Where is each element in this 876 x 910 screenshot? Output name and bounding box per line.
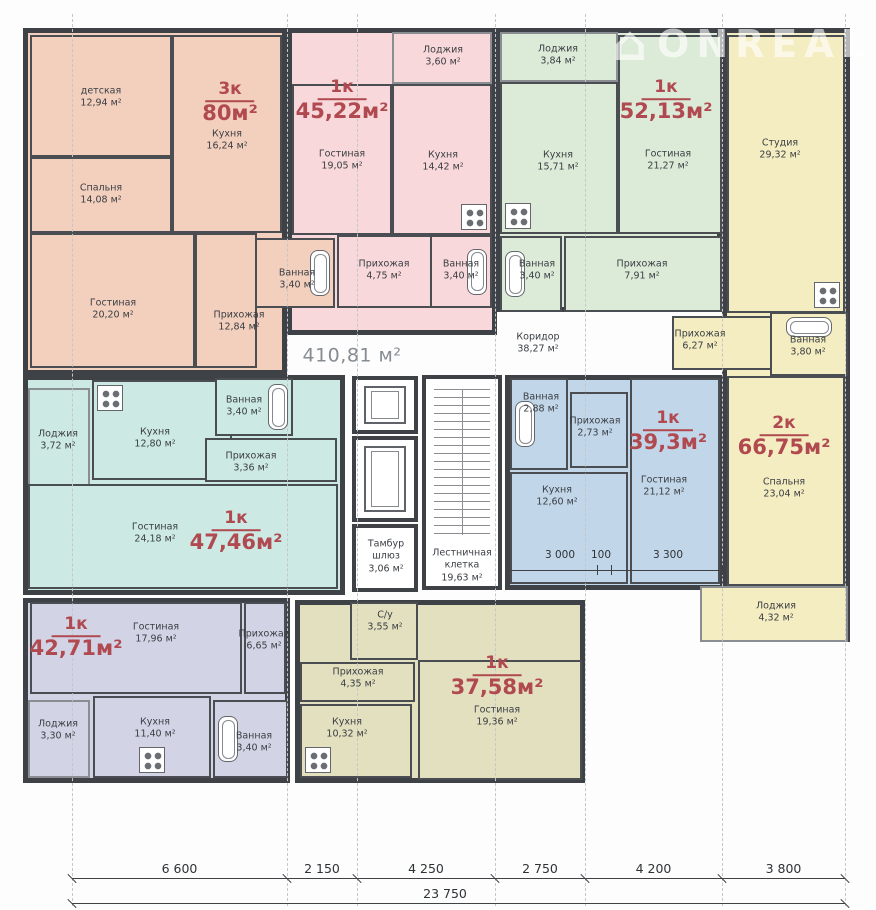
apartment-type: 1к	[472, 654, 521, 676]
room-label: Ванная3,80 м²	[790, 335, 826, 360]
room-name: Прихожая	[359, 259, 410, 271]
room-label: Кухня11,40 м²	[134, 717, 175, 742]
segment-dimension-label: 6 600	[162, 861, 198, 876]
room-area: 3,72 м²	[38, 441, 78, 453]
room-name: Прихожая	[675, 329, 726, 341]
room-label: Ванная3,40 м²	[226, 395, 262, 420]
room-label: Кухня14,42 м²	[422, 150, 463, 175]
room-label: Кухня15,71 м²	[537, 150, 578, 175]
room-label: Лоджия3,72 м²	[38, 429, 78, 454]
apartment-area: 39,3м²	[629, 431, 707, 455]
segment-dimension-label: 2 750	[522, 861, 558, 876]
room-name: Студия	[759, 138, 800, 150]
room-name: Кухня	[326, 717, 367, 729]
room-name: Прихожая	[617, 259, 668, 271]
floorplan: 410,81 м²Коридор38,27 м²Тамбур шлюз3,06 …	[0, 0, 876, 910]
room-name: Кухня	[537, 150, 578, 162]
room-name: детская	[80, 86, 121, 98]
apartment-area: 80м²	[202, 102, 258, 126]
room-name: Гостиная	[132, 522, 178, 534]
inner-dimension-label: 100	[591, 549, 611, 561]
room-label: Гостиная24,18 м²	[132, 522, 178, 547]
apartment-label-1k-47: 1к47,46м²	[190, 509, 283, 555]
room-name: Лоджия	[423, 45, 463, 57]
room-3k-80-hall	[195, 233, 257, 368]
room-label: Лоджия4,32 м²	[756, 601, 796, 626]
room-area: 12,80 м²	[134, 439, 175, 451]
inner-dimension-label: 3 300	[653, 549, 683, 561]
room-area: 19,36 м²	[474, 717, 520, 729]
room-label: Прихожая7,91 м²	[617, 259, 668, 284]
apartment-label-1k-52: 1к52,13м²	[620, 78, 713, 124]
room-area: 11,40 м²	[134, 729, 175, 741]
room-name: Кухня	[134, 717, 175, 729]
room-name: Ванная	[443, 259, 479, 271]
dimension-tick	[611, 565, 612, 575]
room-area: 14,08 м²	[80, 195, 122, 207]
room-name: Ванная	[523, 392, 559, 404]
stove-icon	[97, 385, 123, 411]
room-area: 20,20 м²	[90, 310, 136, 322]
room-area: 15,71 м²	[537, 162, 578, 174]
apartment-type: 1к	[641, 78, 690, 100]
room-label: Гостиная19,36 м²	[474, 705, 520, 730]
room-label: Прихожая4,35 м²	[333, 667, 384, 692]
room-name: Лоджия	[538, 44, 578, 56]
room-label: Прихожая2,73 м²	[570, 416, 621, 441]
area-label-floor-total: 410,81 м²	[303, 344, 402, 369]
axis-line	[845, 14, 846, 906]
stairs-icon	[434, 389, 490, 535]
room-name: С/у	[367, 610, 402, 622]
room-name: Кухня	[206, 129, 247, 141]
apartment-type: 1к	[317, 78, 366, 100]
axis-line	[495, 14, 496, 906]
apartment-label-2k-66: 2к66,75м²	[738, 414, 831, 460]
segment-dimension-label: 2 150	[304, 861, 340, 876]
room-label: Гостиная19,05 м²	[319, 149, 365, 174]
segment-dimension-line	[72, 878, 845, 879]
room-name: Лоджия	[756, 601, 796, 613]
room-area: 21,27 м²	[645, 161, 691, 173]
room-name: Прихожая	[239, 629, 290, 641]
elevator-icon	[364, 386, 406, 424]
apartment-area: 52,13м²	[620, 100, 713, 124]
dimension-tick	[597, 565, 598, 575]
room-label: Кухня12,80 м²	[134, 427, 175, 452]
area-name: Лестничная клетка	[429, 547, 495, 572]
room-area: 4,75 м²	[359, 271, 410, 283]
room-area: 12,94 м²	[80, 98, 121, 110]
room-label: Прихожая6,27 м²	[675, 329, 726, 354]
room-area: 3,40 м²	[443, 271, 479, 283]
room-label: Ванная3,40 м²	[236, 731, 272, 756]
room-label: Гостиная21,12 м²	[641, 475, 687, 500]
area-label-corridor: Коридор38,27 м²	[516, 332, 559, 357]
segment-dimension-label: 4 200	[636, 861, 672, 876]
dimension-tick	[508, 565, 509, 575]
room-area: 4,32 м²	[756, 613, 796, 625]
room-name: Гостиная	[645, 149, 691, 161]
room-1k-47-living	[28, 484, 338, 589]
room-name: Ванная	[236, 731, 272, 743]
room-area: 3,80 м²	[790, 347, 826, 359]
room-area: 12,84 м²	[214, 322, 265, 334]
room-2k-66-studio	[727, 35, 845, 313]
apartment-label-1k-42: 1к42,71м²	[30, 615, 123, 661]
apartment-area: 45,22м²	[296, 100, 389, 124]
room-area: 3,40 м²	[226, 407, 262, 419]
room-label: Гостиная21,27 м²	[645, 149, 691, 174]
stove-icon	[139, 747, 165, 773]
room-label: Ванная3,40 м²	[279, 268, 315, 293]
room-label: Кухня10,32 м²	[326, 717, 367, 742]
room-name: Прихожая	[226, 451, 277, 463]
apartment-area: 42,71м²	[30, 637, 123, 661]
axis-line	[72, 14, 73, 906]
total-dimension-label: 23 750	[423, 886, 467, 901]
apartment-label-1k-39: 1к39,3м²	[629, 409, 707, 455]
room-label: Спальня23,04 м²	[763, 477, 805, 502]
room-label: Ванная3,40 м²	[519, 259, 555, 284]
room-name: Ванная	[226, 395, 262, 407]
room-name: Гостиная	[90, 298, 136, 310]
room-area: 19,05 м²	[319, 161, 365, 173]
area-elevator-2	[352, 436, 418, 522]
room-name: Ванная	[519, 259, 555, 271]
room-name: Спальня	[763, 477, 805, 489]
room-area: 23,04 м²	[763, 489, 805, 501]
axis-line	[585, 14, 586, 906]
stove-icon	[505, 203, 531, 229]
apartment-type: 2к	[759, 414, 808, 436]
room-label: Лоджия3,60 м²	[423, 45, 463, 70]
room-area: 3,84 м²	[538, 56, 578, 68]
room-label: Кухня16,24 м²	[206, 129, 247, 154]
dimension-tick	[722, 565, 723, 575]
elevator-icon	[364, 446, 406, 512]
room-name: Гостиная	[133, 622, 179, 634]
room-area: 3,40 м²	[236, 743, 272, 755]
room-name: Ванная	[790, 335, 826, 347]
room-area: 3,36 м²	[226, 463, 277, 475]
area-name: Тамбур шлюз	[353, 538, 419, 563]
apartment-type: 1к	[51, 615, 100, 637]
room-area: 29,32 м²	[759, 150, 800, 162]
room-label: Прихожая4,75 м²	[359, 259, 410, 284]
apartment-label-1k-37: 1к37,58м²	[451, 654, 544, 700]
segment-dimension-label: 3 800	[766, 861, 802, 876]
room-area: 24,18 м²	[132, 534, 178, 546]
room-label: Ванная2,88 м²	[523, 392, 559, 417]
room-label: Лоджия3,30 м²	[38, 719, 78, 744]
room-label: Ванная3,40 м²	[443, 259, 479, 284]
room-name: Кухня	[134, 427, 175, 439]
room-label: Гостиная17,96 м²	[133, 622, 179, 647]
room-name: Кухня	[422, 150, 463, 162]
room-label: Студия29,32 м²	[759, 138, 800, 163]
room-area: 3,40 м²	[519, 271, 555, 283]
room-label: Кухня12,60 м²	[536, 485, 577, 510]
apartment-label-1k-45: 1к45,22м²	[296, 78, 389, 124]
room-label: Гостиная20,20 м²	[90, 298, 136, 323]
room-area: 4,35 м²	[333, 679, 384, 691]
apartment-area: 66,75м²	[738, 436, 831, 460]
room-label: Лоджия3,84 м²	[538, 44, 578, 69]
apartment-type: 1к	[643, 409, 692, 431]
apartment-label-3k-80: 3к80м²	[202, 80, 258, 126]
area-name: Коридор	[516, 332, 559, 344]
room-label: Прихожая6,65 м²	[239, 629, 290, 654]
inner-dimension-line	[508, 570, 722, 571]
room-name: Гостиная	[641, 475, 687, 487]
room-name: Гостиная	[319, 149, 365, 161]
room-area: 2,73 м²	[570, 428, 621, 440]
room-area: 16,24 м²	[206, 141, 247, 153]
room-area: 3,60 м²	[423, 57, 463, 69]
apartment-area: 47,46м²	[190, 531, 283, 555]
area-value: 410,81 м²	[303, 344, 402, 369]
room-area: 7,91 м²	[617, 271, 668, 283]
room-1k-52-living	[618, 35, 722, 234]
room-area: 6,27 м²	[675, 341, 726, 353]
stove-icon	[814, 282, 840, 308]
room-label: С/у3,55 м²	[367, 610, 402, 635]
room-area: 21,12 м²	[641, 487, 687, 499]
room-name: Прихожая	[214, 310, 265, 322]
room-area: 3,55 м²	[367, 622, 402, 634]
axis-line	[287, 14, 288, 906]
apartment-area: 37,58м²	[451, 676, 544, 700]
room-label: Прихожая3,36 м²	[226, 451, 277, 476]
room-name: Лоджия	[38, 429, 78, 441]
room-area: 2,88 м²	[523, 404, 559, 416]
area-label-tambour: Тамбур шлюз3,06 м²	[353, 538, 419, 575]
room-name: Прихожая	[570, 416, 621, 428]
room-area: 10,32 м²	[326, 729, 367, 741]
bathtub-icon	[268, 384, 288, 430]
stove-icon	[305, 747, 331, 773]
room-name: Прихожая	[333, 667, 384, 679]
area-value: 38,27 м²	[516, 344, 559, 356]
room-label: Спальня14,08 м²	[80, 183, 122, 208]
stove-icon	[461, 204, 487, 230]
room-name: Кухня	[536, 485, 577, 497]
area-value: 19,63 м²	[429, 572, 495, 584]
room-area: 17,96 м²	[133, 634, 179, 646]
total-dimension-line	[72, 903, 845, 904]
room-label: Прихожая12,84 м²	[214, 310, 265, 335]
room-name: Ванная	[279, 268, 315, 280]
room-label: детская12,94 м²	[80, 86, 121, 111]
room-area: 3,40 м²	[279, 280, 315, 292]
area-label-stairwell: Лестничная клетка19,63 м²	[429, 547, 495, 584]
area-elevator-1	[352, 376, 418, 434]
axis-line	[722, 14, 723, 906]
room-name: Лоджия	[38, 719, 78, 731]
area-value: 3,06 м²	[353, 563, 419, 575]
room-area: 3,30 м²	[38, 731, 78, 743]
inner-dimension-label: 3 000	[545, 549, 575, 561]
apartment-type: 1к	[211, 509, 260, 531]
room-name: Спальня	[80, 183, 122, 195]
room-name: Гостиная	[474, 705, 520, 717]
room-area: 14,42 м²	[422, 162, 463, 174]
apartment-type: 3к	[205, 80, 254, 102]
room-area: 12,60 м²	[536, 497, 577, 509]
room-area: 6,65 м²	[239, 641, 290, 653]
segment-dimension-label: 4 250	[408, 861, 444, 876]
